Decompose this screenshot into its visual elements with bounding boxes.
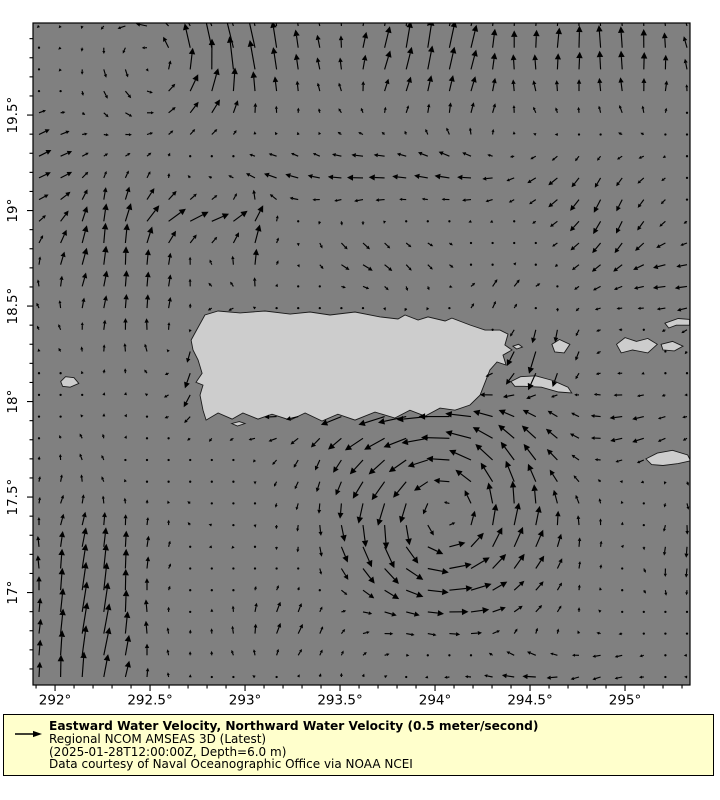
x-tick-label: 293° [229, 693, 262, 709]
figure: 292°292.5°293°293.5°294°294.5°295°19.5°1… [0, 0, 720, 800]
x-tick-label: 292° [39, 693, 72, 709]
x-tick-label: 294.5° [507, 693, 552, 709]
y-tick-label: 19.5° [5, 97, 21, 134]
x-tick-label: 292.5° [127, 693, 172, 709]
legend-model-line: Regional NCOM AMSEAS 3D (Latest) [49, 733, 538, 746]
x-tick-label: 295° [609, 693, 642, 709]
y-tick-label: 18° [5, 390, 21, 414]
y-tick-label: 17.5° [5, 479, 21, 516]
reference-arrow-icon [15, 729, 43, 739]
y-tick-label: 18.5° [5, 288, 21, 325]
legend-credit-line: Data courtesy of Naval Oceanographic Off… [49, 758, 538, 771]
legend-text: Eastward Water Velocity, Northward Water… [49, 720, 538, 771]
water-velocity-quiver-map: 292°292.5°293°293.5°294°294.5°295°19.5°1… [0, 0, 720, 712]
legend-box: Eastward Water Velocity, Northward Water… [3, 714, 714, 776]
x-tick-label: 294° [419, 693, 452, 709]
island-puerto-rico [191, 311, 512, 421]
x-tick-label: 293.5° [317, 693, 362, 709]
y-tick-label: 17° [5, 581, 21, 605]
y-tick-label: 19° [5, 199, 21, 223]
legend-title: Eastward Water Velocity, Northward Water… [49, 720, 538, 733]
